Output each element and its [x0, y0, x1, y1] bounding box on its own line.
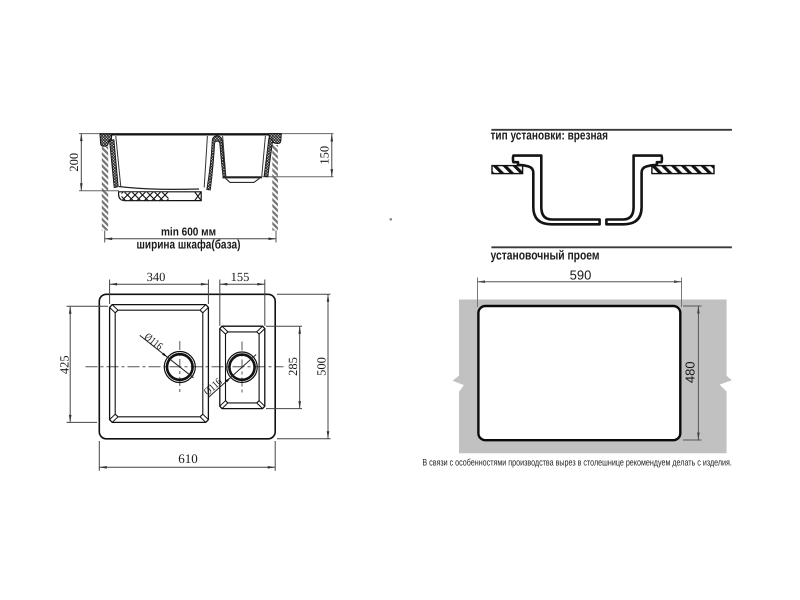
- svg-text:500: 500: [314, 357, 328, 376]
- svg-text:200: 200: [67, 153, 81, 172]
- svg-text:285: 285: [286, 357, 300, 376]
- svg-text:тип установки: врезная: тип установки: врезная: [491, 128, 609, 143]
- svg-text:425: 425: [57, 355, 71, 374]
- svg-text:Ø116: Ø116: [202, 376, 225, 399]
- svg-text:590: 590: [570, 267, 592, 282]
- svg-text:155: 155: [231, 270, 250, 284]
- svg-text:В связи с особенностями произв: В связи с особенностями производства выр…: [422, 457, 732, 468]
- svg-text:Ø116: Ø116: [142, 331, 165, 353]
- svg-text:610: 610: [178, 451, 198, 466]
- svg-text:480: 480: [682, 361, 697, 383]
- svg-text:ширина шкафа(база): ширина шкафа(база): [137, 238, 241, 252]
- svg-text:340: 340: [147, 270, 166, 284]
- svg-text:150: 150: [318, 146, 332, 165]
- svg-text:установочный проем: установочный проем: [491, 247, 600, 262]
